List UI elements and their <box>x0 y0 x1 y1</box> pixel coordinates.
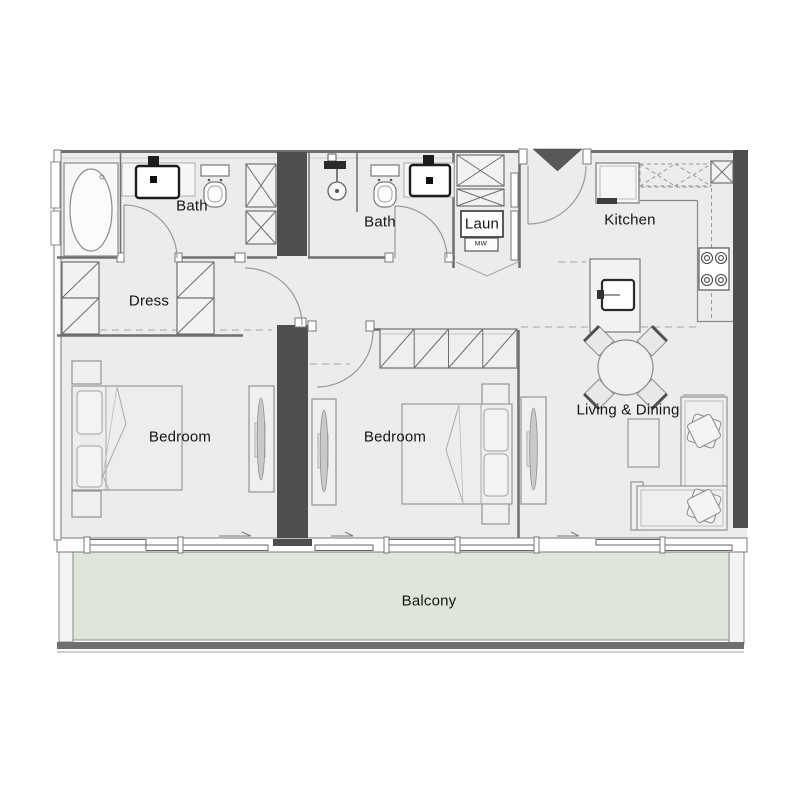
toilet <box>371 165 399 176</box>
room-label-bath-second: Bath <box>364 214 396 231</box>
right-wall-dark <box>733 150 748 528</box>
pillow <box>484 454 508 496</box>
wall-block-middle <box>277 325 308 538</box>
room-label-bedroom-left: Bedroom <box>149 429 211 446</box>
tv <box>530 408 538 490</box>
nightstand <box>72 361 101 384</box>
left-window <box>51 211 60 245</box>
shower-fixture <box>324 161 346 169</box>
tv <box>257 398 265 480</box>
room-label-laundry: Laun <box>465 216 499 233</box>
room-label-kitchen: Kitchen <box>604 212 655 229</box>
room-label-bedroom-middle: Bedroom <box>364 429 426 446</box>
room-label-balcony: Balcony <box>402 593 457 610</box>
room-label-bath-main: Bath <box>176 198 208 215</box>
tv <box>320 410 328 492</box>
toilet <box>201 165 229 176</box>
room-label-living-dining: Living & Dining <box>576 402 679 419</box>
floor-plan: Bath Dress Bath Laun MW Kitchen Bedroom … <box>0 0 800 800</box>
left-window <box>51 162 60 208</box>
wall-block-top <box>277 152 307 256</box>
faucet <box>148 156 159 165</box>
faucet <box>423 155 434 165</box>
nightstand <box>482 384 509 405</box>
nightstand <box>482 503 509 524</box>
floor-plan-drawing <box>0 0 800 800</box>
label-laundry-appliance: MW <box>475 241 487 248</box>
room-label-dress: Dress <box>129 293 169 310</box>
pillow <box>77 391 102 434</box>
sink <box>136 166 179 198</box>
nightstand <box>72 491 101 517</box>
pillow <box>77 446 102 487</box>
bedroom-middle-closet <box>380 329 517 368</box>
pillow <box>484 409 508 451</box>
coffee-table <box>628 419 659 467</box>
fridge <box>596 163 639 203</box>
dining-table <box>598 340 653 395</box>
shaft-column <box>246 164 276 244</box>
balcony-sliding-doors <box>57 537 747 553</box>
